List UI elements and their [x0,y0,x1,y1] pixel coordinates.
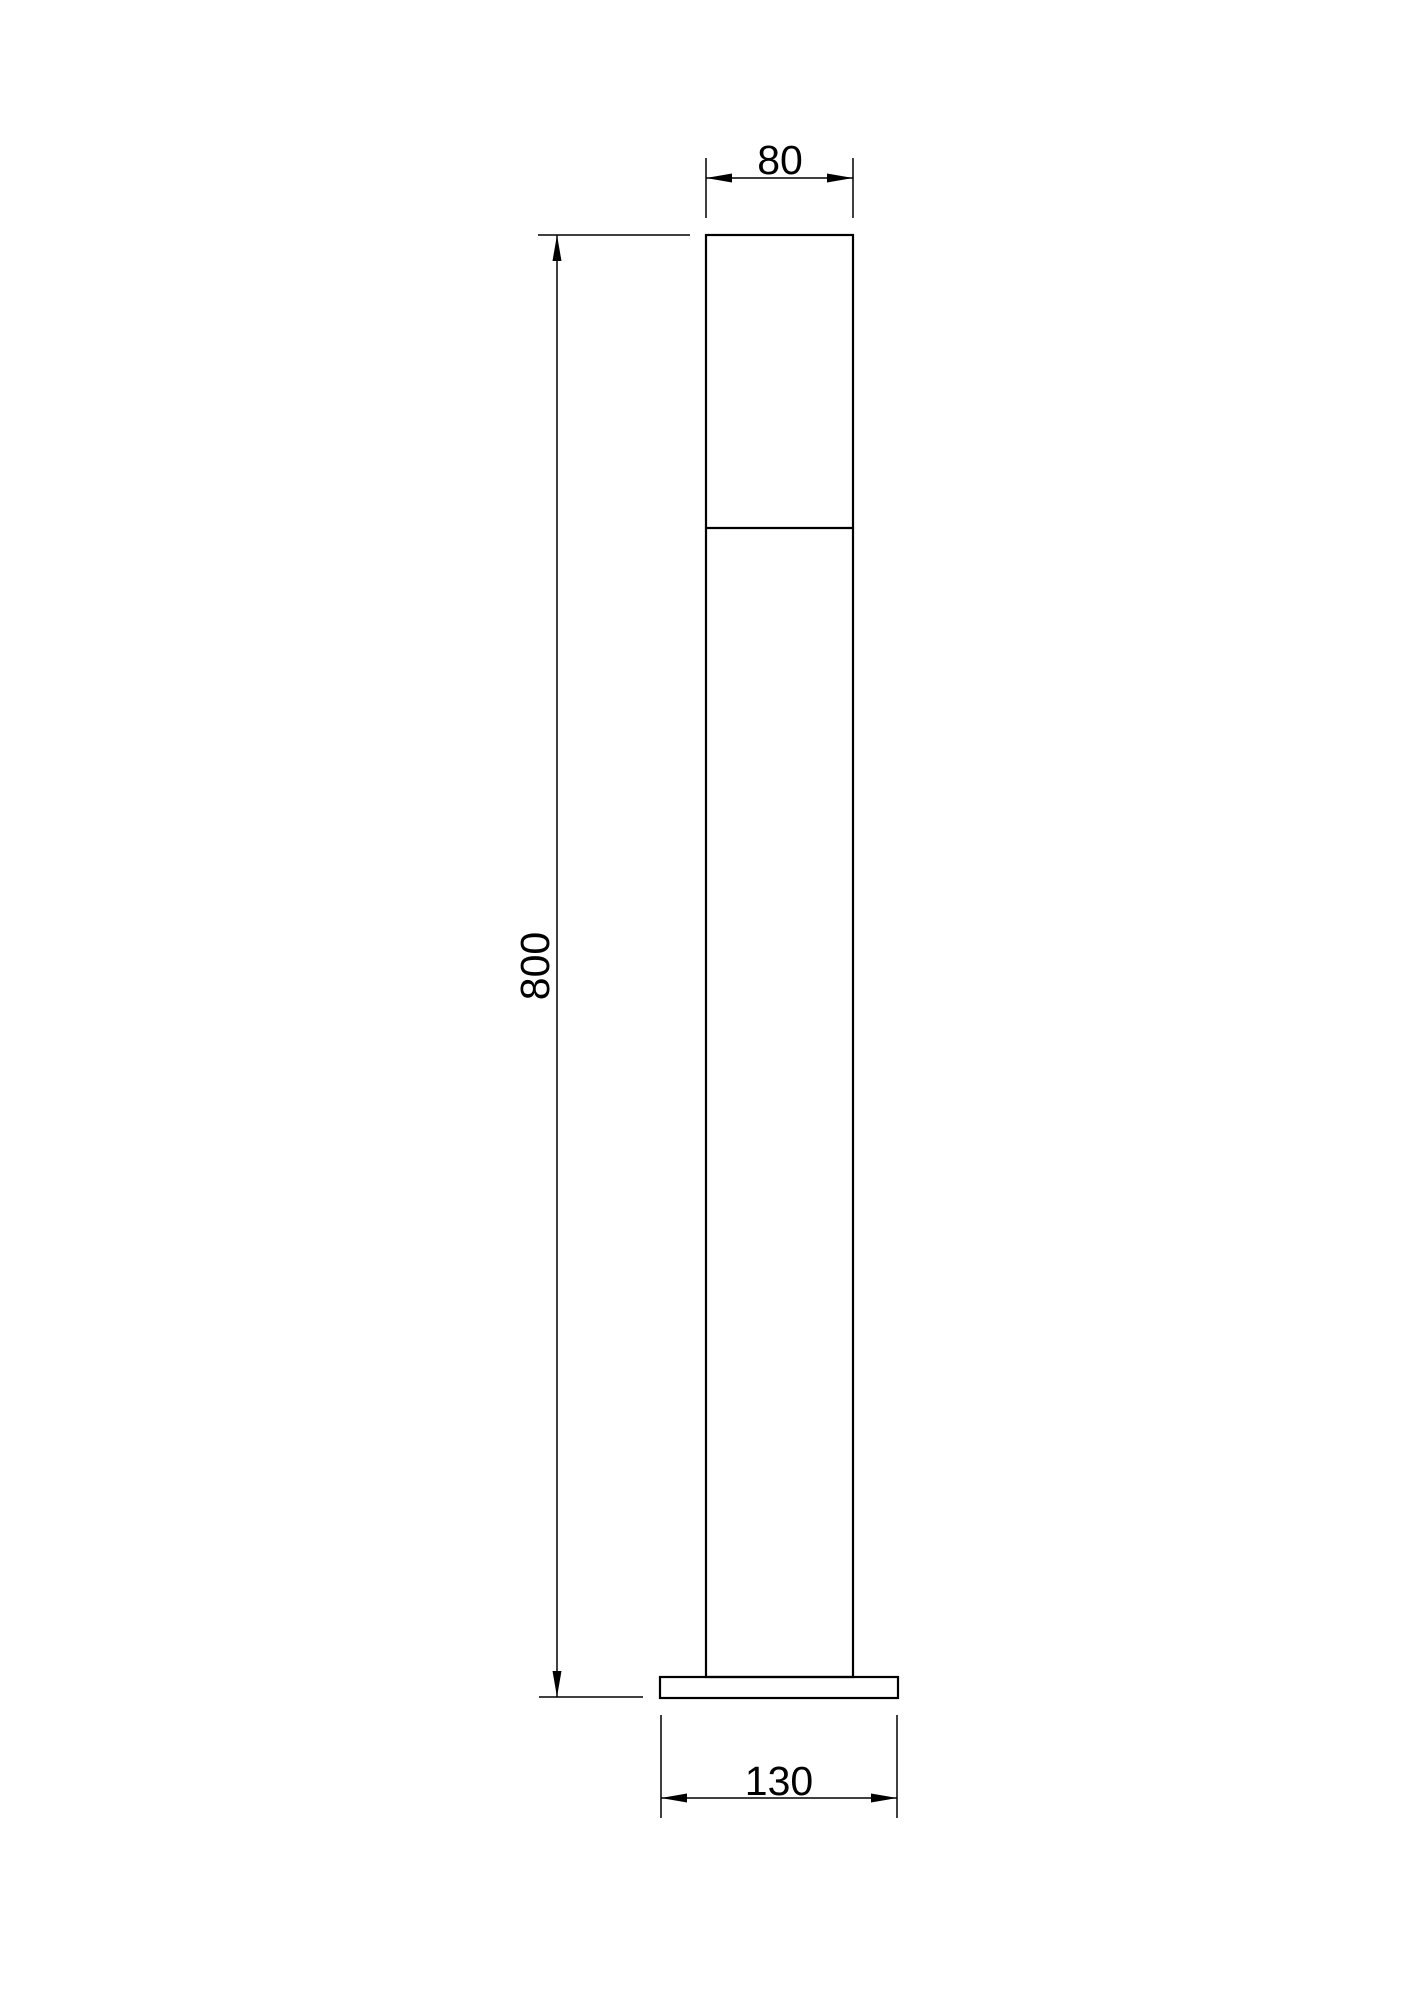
arrowhead-right-icon [827,174,853,183]
lamp-outline-group [660,235,898,1698]
dimension-overall-height: 800 [512,235,690,1697]
technical-drawing: 80 800 130 [0,0,1413,2000]
dimension-value-base-width: 130 [745,1758,813,1804]
arrowhead-up-icon [553,235,562,261]
base-plate-outline [660,1677,898,1698]
arrowhead-down-icon [553,1671,562,1697]
arrowhead-left-icon [706,174,732,183]
drawing-canvas: 80 800 130 [0,0,1413,2000]
dimension-base-width: 130 [661,1715,897,1818]
arrowhead-right-icon [871,1794,897,1803]
dimension-head-width: 80 [706,137,853,218]
dimension-value-head-width: 80 [757,137,803,183]
arrowhead-left-icon [661,1794,687,1803]
lamp-body-outline [706,235,853,1677]
dimension-value-overall-height: 800 [512,932,558,1000]
